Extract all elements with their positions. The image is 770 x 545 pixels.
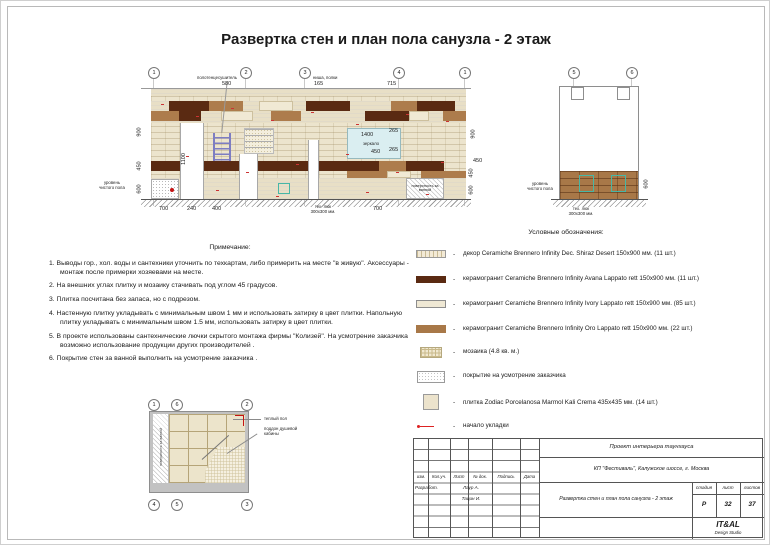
- hatch-label: тех. люк 300х300 мм.: [557, 207, 605, 217]
- axis-circle: 2: [241, 399, 253, 411]
- tile-accent: [204, 161, 239, 171]
- towel-rail: [213, 133, 231, 161]
- dim: 240: [187, 206, 196, 212]
- tile-accent: [306, 101, 350, 111]
- tile-accent: [169, 101, 209, 111]
- legend-dash: -: [453, 276, 455, 283]
- tb-sheet-header: лист: [716, 485, 740, 490]
- wall-elevation: поверхность за ванной 1400 265 зеркало 4…: [151, 96, 466, 199]
- leader-line: [233, 419, 261, 420]
- tb-line: [539, 439, 540, 537]
- tb-col-data: Дата: [520, 474, 539, 479]
- legend-item-label: керамогранит Ceramiche Brennero Infinity…: [463, 325, 693, 332]
- tile-accent: [387, 171, 411, 178]
- axis-circle: 1: [459, 67, 471, 79]
- drawing-sheet: Развертка стен и план пола санузла - 2 э…: [0, 0, 770, 545]
- tb-stage-header: стадия: [692, 485, 716, 490]
- axis-circle: 6: [626, 67, 638, 79]
- note-item: 4. Настенную плитку укладывать с минимал…: [49, 310, 411, 328]
- dim: 1100: [181, 153, 187, 165]
- tile-accent: [391, 101, 417, 111]
- elevation-top-line: [141, 88, 471, 89]
- axis-circle: 6: [171, 399, 183, 411]
- tb-line: [692, 494, 764, 495]
- plan-behind-bath-label: поверхность за ванной: [159, 415, 163, 479]
- note-item: 1. Выводы гор., хол. воды и сантехники у…: [49, 260, 411, 278]
- wall-gap: [239, 154, 258, 199]
- legend-dash: -: [453, 326, 455, 333]
- bath-front-panel: [151, 179, 179, 199]
- axis-circle: 1: [148, 399, 160, 411]
- dim: 165: [314, 81, 323, 87]
- access-hatch: [611, 175, 626, 192]
- note-item: 5. В проекте использованы сантехнические…: [49, 333, 411, 351]
- tb-developed: Разработ.: [415, 485, 451, 490]
- tile-accent: [258, 161, 308, 171]
- dim: 900: [471, 129, 477, 138]
- tb-line: [520, 439, 521, 537]
- wall-notch: [617, 87, 630, 100]
- tb-sheets-header: листов: [740, 485, 764, 490]
- tb-line: [539, 482, 764, 483]
- legend-swatch-start-dot: [417, 425, 420, 428]
- dim: 600: [469, 185, 475, 194]
- legend-swatch-ivory: [416, 300, 446, 308]
- legend-item-label: плитка Zodiac Porcelanosa Marmol Kali Cr…: [463, 399, 658, 406]
- legend-item-label: керамогранит Ceramiche Brennero Infinity…: [463, 300, 696, 307]
- tb-line: [539, 457, 764, 458]
- niche-label: ниша, полки: [313, 75, 337, 80]
- tile-accent: [271, 111, 301, 121]
- axis-circle: 3: [299, 67, 311, 79]
- axis-circle: 5: [171, 499, 183, 511]
- outlet-mark: [170, 188, 174, 192]
- dim: 700: [373, 206, 382, 212]
- legend-item-label: начало укладки: [463, 422, 509, 429]
- tb-drawing-name: Развертка стен и план пола санузла - 2 э…: [541, 496, 691, 502]
- axis-circle: 4: [393, 67, 405, 79]
- dim: 450: [469, 168, 475, 177]
- note-item: 6. Покрытие стен за ванной выполнить на …: [49, 355, 411, 364]
- shower-tray-label: поддон душевой кабины: [264, 427, 308, 437]
- dim: 265: [389, 147, 398, 153]
- tb-name-1: Лаур А.: [450, 485, 492, 490]
- tb-sheet-value: 32: [716, 501, 740, 508]
- legend-item: - покрытие на усмотрение заказчика: [416, 371, 761, 389]
- tile-accent: [379, 161, 406, 171]
- legend-item-label: покрытие на усмотрение заказчика: [463, 372, 566, 379]
- legend-dash: -: [453, 301, 455, 308]
- tile-accent: [421, 171, 466, 178]
- legend-item: - декор Ceramiche Brennero Infinity Dec.…: [416, 249, 761, 267]
- legend-dash: -: [453, 349, 455, 356]
- tb-address: КП "Фестиваль", Калужское шоссе, г. Моск…: [539, 466, 764, 472]
- legend-swatch-client-choice: [417, 371, 445, 383]
- tb-col-ndok: № док.: [468, 474, 492, 479]
- axis-circle: 5: [568, 67, 580, 79]
- tile-accent: [179, 111, 201, 121]
- note-item: 3. Плитка посчитана без запаса, но с под…: [49, 296, 411, 305]
- dim: 450: [137, 161, 143, 170]
- tile-accent: [221, 111, 253, 121]
- dim: 600: [644, 179, 650, 188]
- legend-dash: -: [453, 399, 455, 406]
- tile-accent: [406, 161, 444, 171]
- title-block: изм. Кол.уч. Лист № док. Подпись Дата Ра…: [413, 438, 763, 538]
- tb-sheets-value: 37: [740, 501, 764, 508]
- tb-stage-value: Р: [692, 501, 716, 508]
- legend-item: - керамогранит Ceramiche Brennero Infini…: [416, 274, 761, 292]
- legend-swatch-decor: [416, 250, 446, 258]
- tb-line: [492, 439, 493, 537]
- shelf-niche: [244, 128, 274, 154]
- tb-col-list: Лист: [450, 474, 468, 479]
- axis-circle: 2: [240, 67, 252, 79]
- legend-swatch-zodiac: [423, 394, 439, 410]
- floor-line: [551, 199, 648, 200]
- legend-item-label: керамогранит Ceramiche Brennero Infinity…: [463, 275, 699, 282]
- behind-bath-label: поверхность за ванной: [406, 184, 444, 193]
- dim: 450: [371, 149, 380, 155]
- dim: 715: [387, 81, 396, 87]
- hatch-label-line2: 300х300 мм.: [311, 209, 336, 214]
- legend-swatch-mosaic: [420, 347, 442, 358]
- tile-accent: [151, 161, 180, 171]
- dim: 600: [137, 184, 143, 193]
- tb-col-koluch: Кол.уч.: [428, 474, 450, 479]
- start-laying-mark: [243, 415, 244, 426]
- dim: 265: [389, 128, 398, 134]
- dim: 900: [137, 127, 143, 136]
- tb-studio-sub: Design Studio: [692, 530, 764, 535]
- legend-title: Условные обозначения:: [431, 229, 701, 236]
- legend-item: - начало укладки: [416, 421, 761, 439]
- tile-accent: [209, 101, 243, 111]
- dim: 400: [212, 206, 221, 212]
- wall-notch: [571, 87, 584, 100]
- notes-title: Примечание:: [49, 244, 411, 253]
- access-hatch: [278, 183, 290, 194]
- dim: 1400: [361, 132, 373, 138]
- legend-item-label: мозаика (4.8 кв. м.): [463, 348, 519, 355]
- mirror-label: зеркало: [363, 141, 379, 146]
- legend-swatch-avana: [416, 276, 446, 283]
- notes-block: Примечание: 1. Выводы гор., хол. воды и …: [49, 244, 411, 369]
- tb-name-2: Тацин И.: [450, 496, 492, 501]
- dim: 580: [222, 81, 231, 87]
- tile-accent: [319, 161, 379, 171]
- legend-swatch-start-mark: [420, 426, 434, 427]
- section-tile-band: [560, 171, 638, 199]
- axis-circle: 1: [148, 67, 160, 79]
- tile-accent: [151, 111, 179, 121]
- note-item: 2. На внешних углах плитку и мозаику ста…: [49, 282, 411, 291]
- access-hatch: [579, 175, 594, 192]
- legend-dash: -: [453, 423, 455, 430]
- axis-circle: 3: [241, 499, 253, 511]
- laying-marks: [161, 104, 164, 105]
- tile-band: [151, 89, 466, 96]
- legend-item-label: декор Ceramiche Brennero Infinity Dec. S…: [463, 250, 676, 257]
- floor-line: [141, 199, 471, 200]
- legend-dash: -: [453, 373, 455, 380]
- tb-line: [539, 517, 764, 518]
- legend-item: - мозаика (4.8 кв. м.): [416, 347, 761, 365]
- ground-hatch: [553, 200, 646, 207]
- tile-accent: [417, 101, 455, 111]
- legend-swatch-oro: [416, 325, 446, 333]
- tb-project: Проект интерьера таунхауса: [539, 444, 764, 450]
- axis-circle: 4: [148, 499, 160, 511]
- legend-item: - керамогранит Ceramiche Brennero Infini…: [416, 299, 761, 317]
- hatch-label-line2: 300х300 мм.: [569, 211, 594, 216]
- wall-gap: [308, 140, 319, 199]
- legend-dash: -: [453, 251, 455, 258]
- legend-item: - плитка Zodiac Porcelanosa Marmol Kali …: [416, 394, 761, 412]
- page-title: Развертка стен и план пола санузла - 2 э…: [121, 31, 651, 48]
- tb-col-izm: изм.: [414, 474, 428, 479]
- floor-level-label: уровень чистого пола: [97, 181, 127, 191]
- dim: 700: [159, 206, 168, 212]
- tb-studio: IT&AL: [692, 520, 764, 529]
- tile-accent: [409, 111, 429, 121]
- tile-accent: [443, 111, 466, 121]
- towel-rail-label: полотенцесушитель: [197, 75, 237, 80]
- floor-level-label: уровень чистого пола: [525, 182, 555, 192]
- legend-item: - керамогранит Ceramiche Brennero Infini…: [416, 324, 761, 342]
- tile-accent: [259, 101, 293, 111]
- tile-accent: [347, 171, 387, 178]
- tb-col-podpis: Подпись: [492, 474, 520, 479]
- warm-floor-label: теплый пол: [264, 416, 287, 421]
- hatch-label: тех. люк 300х300 мм.: [301, 205, 345, 215]
- dim: 450: [473, 158, 482, 164]
- tile-accent: [365, 111, 409, 121]
- plan-behind-bath-strip: поверхность за ванной: [153, 414, 169, 483]
